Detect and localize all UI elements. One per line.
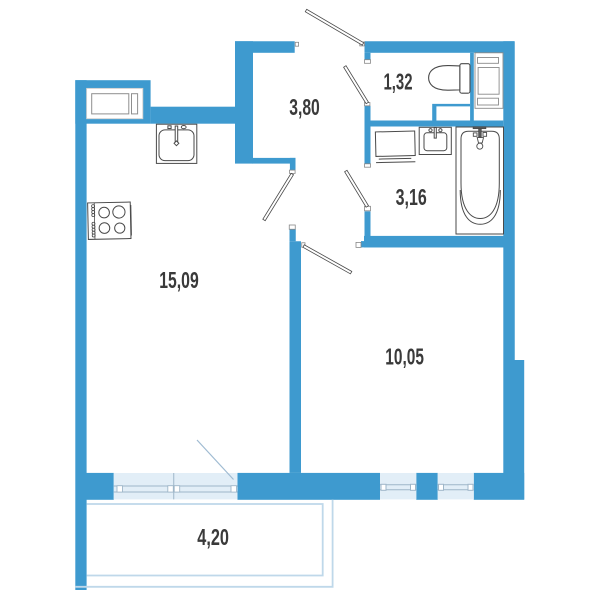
- svg-text:3,80: 3,80: [289, 94, 320, 120]
- svg-text:4,20: 4,20: [197, 524, 229, 550]
- svg-text:10,05: 10,05: [385, 344, 424, 370]
- svg-text:15,09: 15,09: [159, 267, 198, 293]
- svg-text:1,32: 1,32: [384, 69, 413, 95]
- svg-text:3,16: 3,16: [396, 184, 427, 210]
